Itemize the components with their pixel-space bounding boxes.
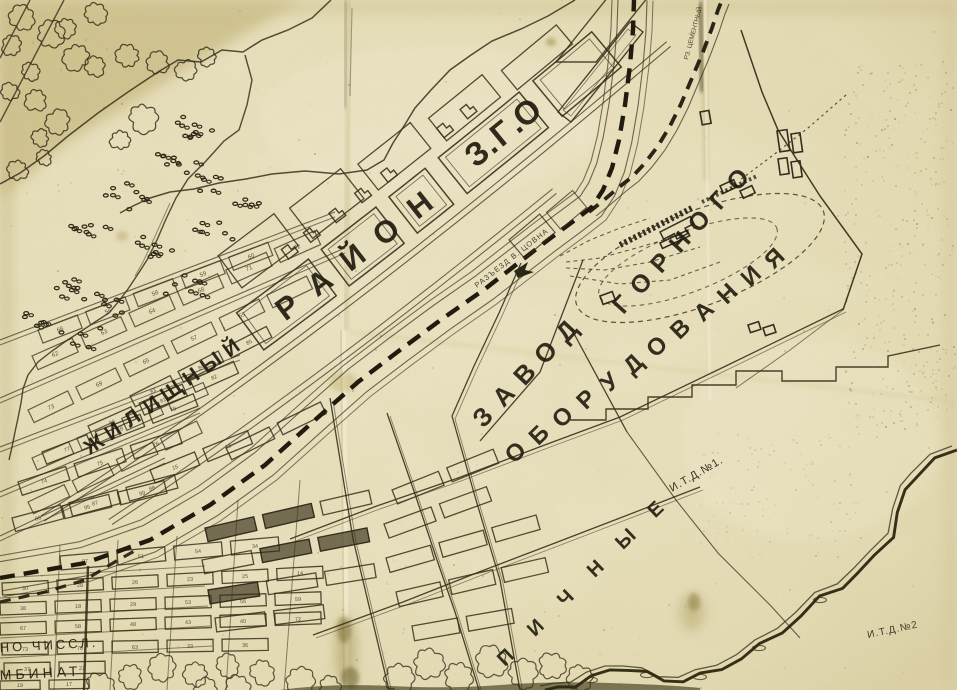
- svg-text:43: 43: [185, 620, 191, 626]
- svg-text:38: 38: [20, 606, 26, 612]
- svg-text:26: 26: [132, 580, 138, 586]
- svg-text:19: 19: [17, 683, 23, 689]
- svg-text:58: 58: [75, 624, 81, 630]
- svg-text:48: 48: [130, 622, 136, 628]
- svg-text:53: 53: [185, 600, 191, 606]
- svg-text:14: 14: [297, 571, 303, 577]
- svg-text:23: 23: [187, 577, 193, 583]
- svg-text:59: 59: [295, 597, 301, 603]
- svg-text:29: 29: [130, 602, 136, 608]
- svg-text:17: 17: [66, 682, 72, 688]
- svg-text:54: 54: [195, 549, 202, 556]
- svg-text:56: 56: [240, 599, 246, 605]
- svg-text:72: 72: [295, 617, 301, 623]
- svg-text:25: 25: [242, 574, 248, 580]
- svg-text:34: 34: [252, 544, 259, 551]
- svg-text:40: 40: [240, 619, 246, 625]
- svg-text:67: 67: [20, 626, 26, 632]
- svg-text:18: 18: [75, 604, 81, 610]
- svg-text:36: 36: [242, 643, 248, 649]
